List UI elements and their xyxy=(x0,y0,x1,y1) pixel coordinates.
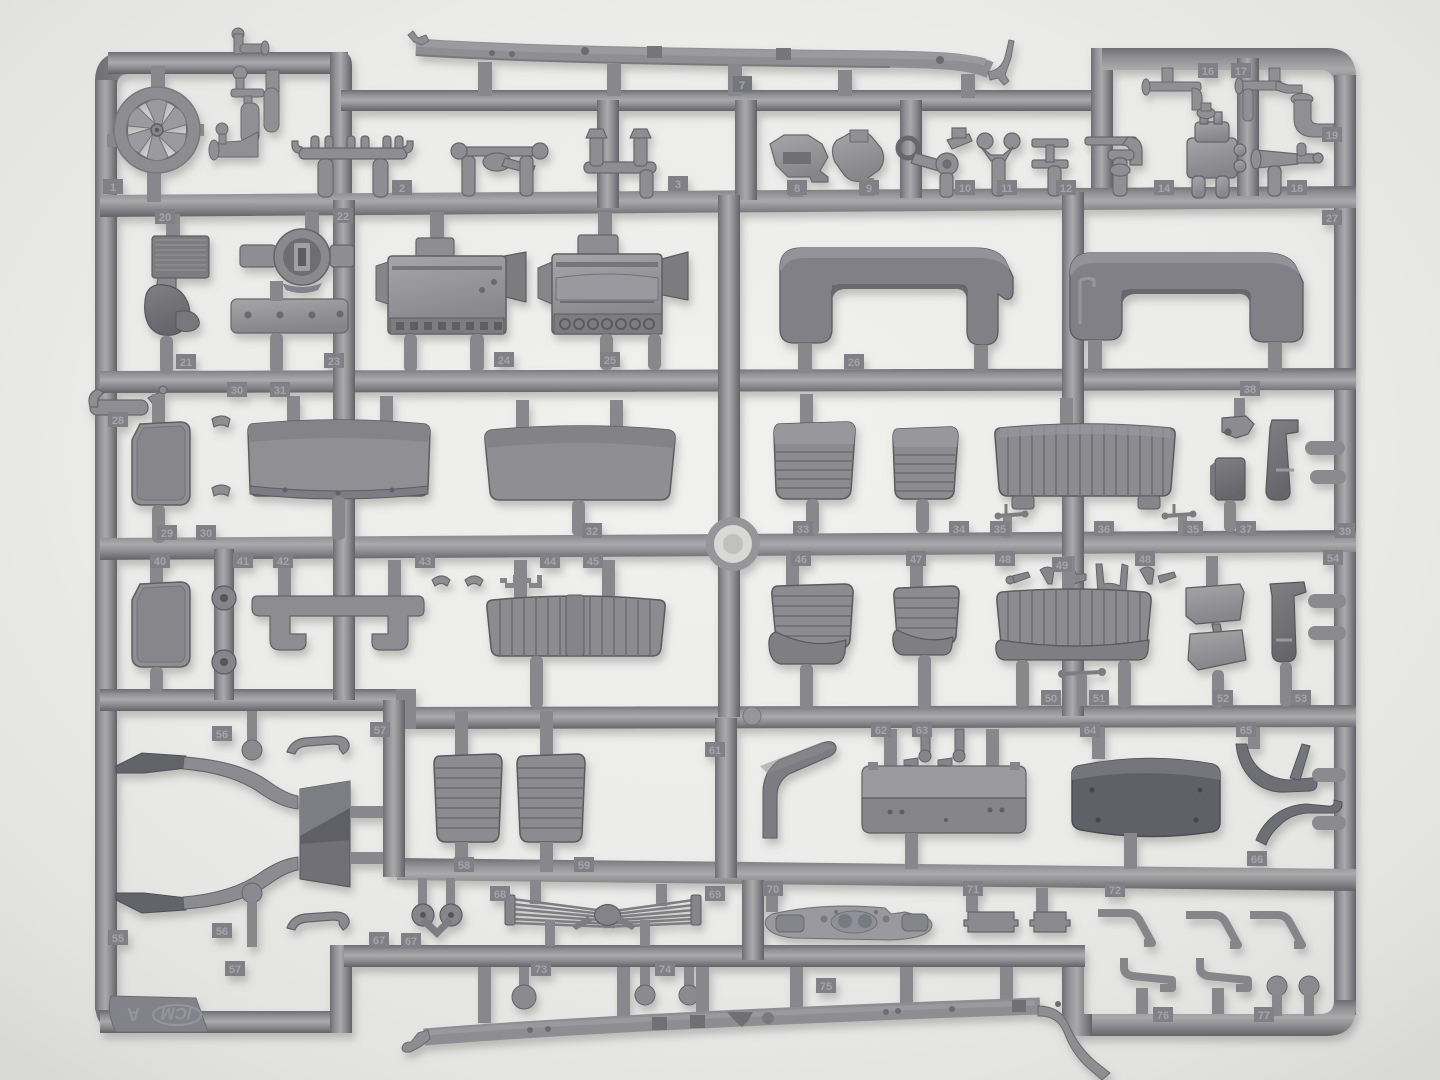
svg-text:51: 51 xyxy=(1093,693,1105,705)
svg-text:35: 35 xyxy=(1187,524,1199,536)
svg-text:55: 55 xyxy=(112,933,124,945)
svg-text:50: 50 xyxy=(1045,693,1057,705)
svg-text:18: 18 xyxy=(1291,183,1303,195)
svg-text:2: 2 xyxy=(399,183,405,195)
svg-text:53: 53 xyxy=(1295,693,1307,705)
svg-text:9: 9 xyxy=(866,183,872,195)
svg-text:7: 7 xyxy=(739,80,745,92)
svg-text:72: 72 xyxy=(1109,885,1121,897)
svg-text:19: 19 xyxy=(1326,130,1338,142)
svg-text:56: 56 xyxy=(216,729,228,741)
svg-text:57: 57 xyxy=(374,725,386,737)
svg-text:63: 63 xyxy=(916,725,928,737)
svg-text:45: 45 xyxy=(587,556,599,568)
svg-text:17: 17 xyxy=(1235,66,1247,78)
svg-text:39: 39 xyxy=(1339,526,1351,538)
svg-text:35: 35 xyxy=(994,524,1006,536)
svg-text:67: 67 xyxy=(405,936,417,948)
svg-text:54: 54 xyxy=(1327,553,1340,565)
svg-text:52: 52 xyxy=(1217,693,1229,705)
svg-text:33: 33 xyxy=(797,524,809,536)
svg-text:68: 68 xyxy=(494,889,506,901)
svg-text:62: 62 xyxy=(875,725,887,737)
svg-text:49: 49 xyxy=(1056,560,1068,572)
svg-text:44: 44 xyxy=(544,556,557,568)
svg-text:59: 59 xyxy=(578,860,590,872)
svg-text:A: A xyxy=(127,1004,140,1024)
svg-text:75: 75 xyxy=(820,981,832,993)
svg-text:30: 30 xyxy=(200,528,212,540)
svg-text:38: 38 xyxy=(1244,384,1256,396)
svg-text:36: 36 xyxy=(1098,524,1110,536)
svg-text:48: 48 xyxy=(1139,554,1151,566)
svg-text:30: 30 xyxy=(231,385,243,397)
svg-text:64: 64 xyxy=(1084,725,1097,737)
svg-text:11: 11 xyxy=(1001,183,1013,195)
svg-text:3: 3 xyxy=(675,179,681,191)
svg-text:74: 74 xyxy=(659,964,672,976)
svg-text:71: 71 xyxy=(967,884,979,896)
svg-text:1: 1 xyxy=(110,182,116,194)
svg-text:77: 77 xyxy=(1258,1010,1270,1022)
svg-text:37: 37 xyxy=(1240,524,1252,536)
svg-text:58: 58 xyxy=(458,860,470,872)
svg-text:16: 16 xyxy=(1202,66,1214,78)
svg-text:41: 41 xyxy=(237,556,249,568)
svg-text:25: 25 xyxy=(604,355,616,367)
svg-text:42: 42 xyxy=(277,556,289,568)
svg-text:61: 61 xyxy=(709,745,721,757)
svg-text:23: 23 xyxy=(328,356,340,368)
svg-text:29: 29 xyxy=(161,528,173,540)
svg-text:47: 47 xyxy=(910,554,922,566)
svg-text:12: 12 xyxy=(1060,183,1072,195)
svg-text:10: 10 xyxy=(959,183,971,195)
svg-text:27: 27 xyxy=(1326,213,1338,225)
svg-text:76: 76 xyxy=(1157,1010,1169,1022)
svg-text:22: 22 xyxy=(337,211,349,223)
svg-text:73: 73 xyxy=(535,964,547,976)
svg-text:14: 14 xyxy=(1158,183,1171,195)
svg-text:31: 31 xyxy=(274,385,286,397)
svg-text:46: 46 xyxy=(795,554,807,566)
svg-text:56: 56 xyxy=(216,926,228,938)
svg-text:40: 40 xyxy=(154,556,166,568)
svg-text:20: 20 xyxy=(159,212,171,224)
svg-text:57: 57 xyxy=(229,964,241,976)
svg-text:26: 26 xyxy=(848,357,860,369)
svg-text:67: 67 xyxy=(373,935,385,947)
svg-text:69: 69 xyxy=(709,889,721,901)
svg-text:21: 21 xyxy=(180,357,192,369)
svg-text:70: 70 xyxy=(767,884,779,896)
svg-text:66: 66 xyxy=(1251,854,1263,866)
svg-text:24: 24 xyxy=(498,355,511,367)
svg-text:28: 28 xyxy=(112,415,124,427)
svg-text:43: 43 xyxy=(419,556,431,568)
svg-text:48: 48 xyxy=(999,554,1011,566)
svg-text:8: 8 xyxy=(794,183,800,195)
svg-text:32: 32 xyxy=(586,526,598,538)
svg-text:65: 65 xyxy=(1240,725,1252,737)
svg-text:34: 34 xyxy=(953,524,966,536)
